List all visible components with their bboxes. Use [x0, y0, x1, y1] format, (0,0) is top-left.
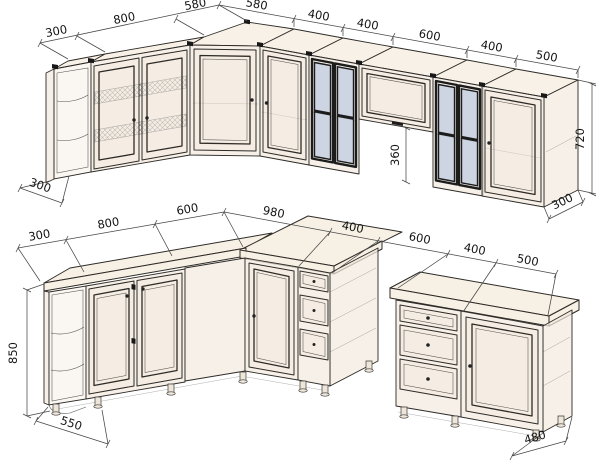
upper-cabinet-500 [482, 80, 578, 207]
upper-cabinet-400-glass-left [309, 55, 359, 174]
dim-hood-height-360: 360 [388, 144, 402, 166]
upper-corner-cabinet-580 [190, 45, 260, 156]
island-drawer-unit-400 [396, 300, 461, 417]
corner-base-cabinet [185, 258, 298, 381]
base-end-shelf-unit-300 [44, 286, 86, 413]
dim-upper-height-720: 720 [573, 128, 587, 150]
base-cabinet-800 [86, 269, 185, 399]
upper-cabinet-400-glass-right [433, 77, 483, 196]
island-door-cabinet-500 [461, 311, 543, 432]
upper-end-shelf-unit-300 [46, 62, 91, 183]
kitchen-drawing-page: 300 800 580 580 400 400 600 400 500 720 … [0, 0, 600, 461]
dim-base-height-850: 850 [6, 342, 20, 364]
kitchen-cabinet-dimension-drawing: 300 800 580 580 400 400 600 400 500 720 … [0, 0, 600, 461]
upper-cabinet-400-solid [260, 46, 309, 165]
